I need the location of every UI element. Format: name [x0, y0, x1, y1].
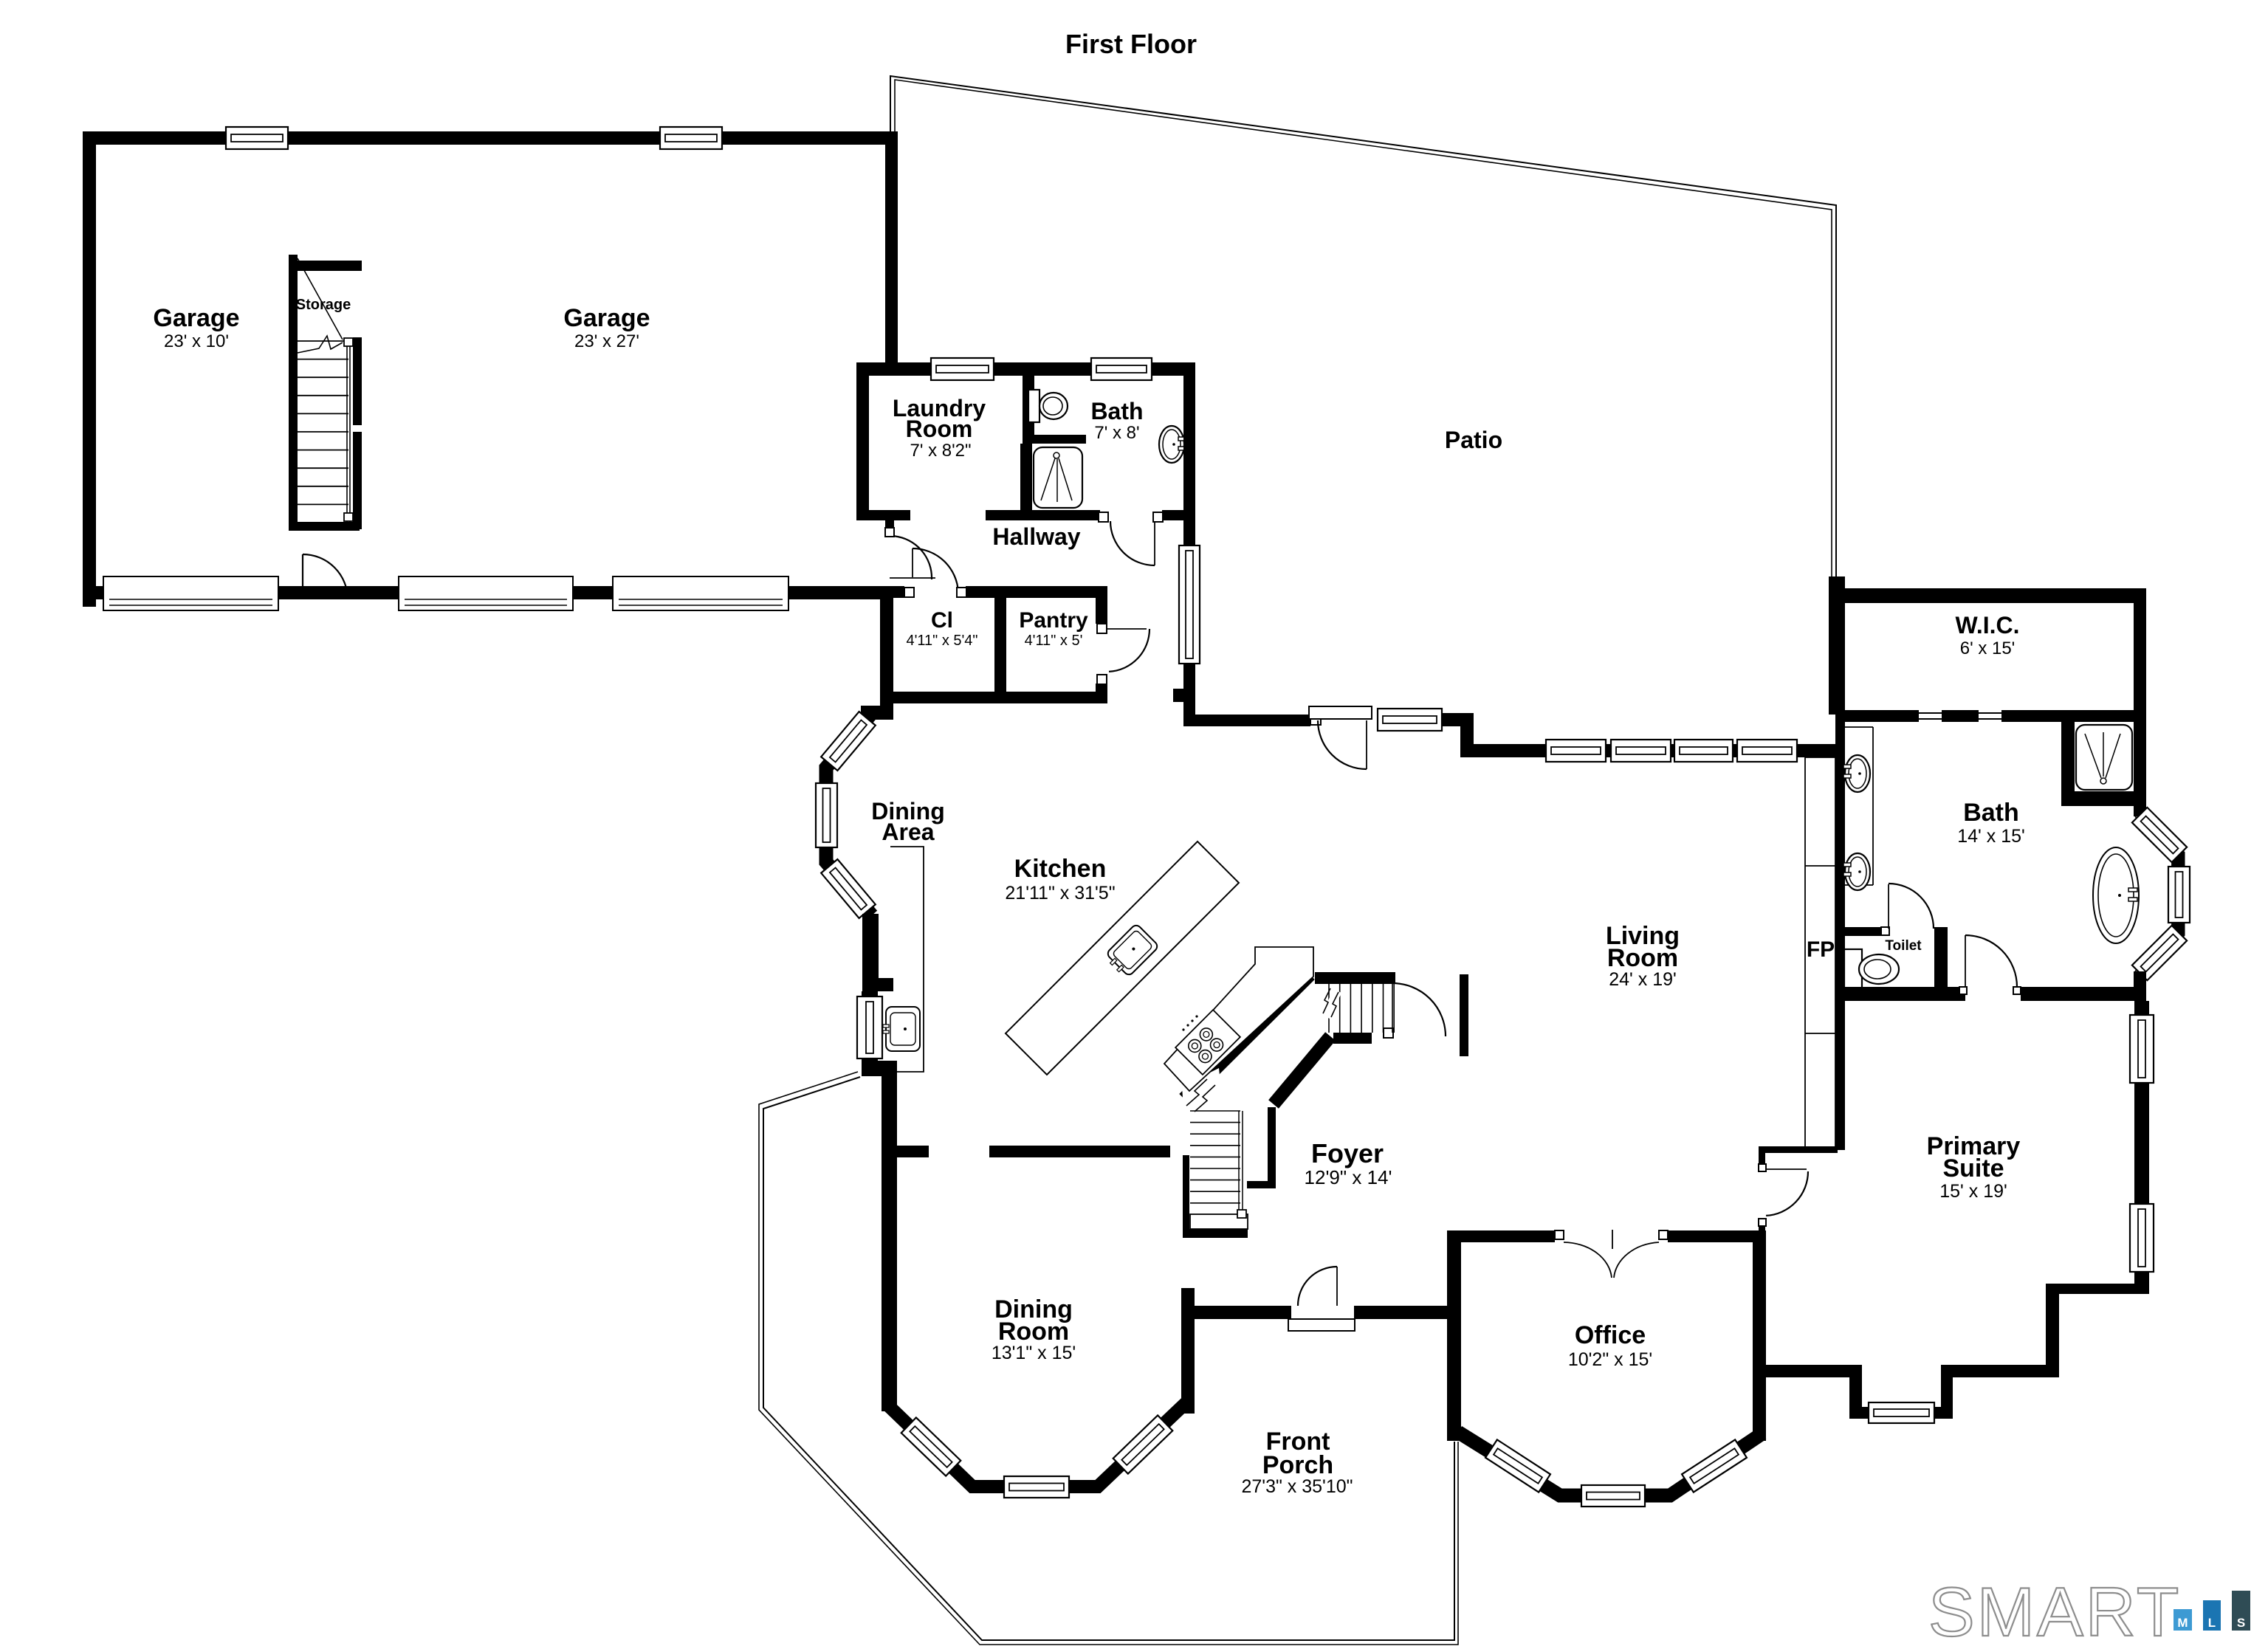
svg-text:M: M	[2177, 1616, 2188, 1630]
svg-text:13'1" x 15': 13'1" x 15'	[992, 1343, 1076, 1363]
svg-text:Office: Office	[1575, 1321, 1646, 1349]
svg-text:First Floor: First Floor	[1065, 29, 1197, 59]
svg-text:7' x 8': 7' x 8'	[1094, 423, 1139, 443]
svg-text:L: L	[2208, 1616, 2216, 1630]
svg-text:W.I.C.: W.I.C.	[1955, 612, 2019, 638]
svg-text:Garage: Garage	[153, 304, 239, 332]
svg-text:23' x 27': 23' x 27'	[574, 331, 639, 351]
svg-text:14' x 15': 14' x 15'	[1957, 826, 2025, 847]
svg-text:Suite: Suite	[1942, 1154, 2004, 1182]
svg-text:15' x 19': 15' x 19'	[1939, 1181, 2007, 1202]
svg-text:12'9" x 14': 12'9" x 14'	[1305, 1166, 1392, 1188]
svg-text:21'11" x 31'5": 21'11" x 31'5"	[1005, 883, 1115, 903]
svg-text:Pantry: Pantry	[1019, 608, 1088, 633]
svg-text:4'11" x 5': 4'11" x 5'	[1025, 633, 1083, 649]
svg-text:Toilet: Toilet	[1885, 938, 1922, 954]
svg-text:Patio: Patio	[1445, 427, 1502, 453]
svg-text:23' x 10': 23' x 10'	[164, 331, 229, 351]
svg-text:Porch: Porch	[1262, 1451, 1333, 1479]
svg-text:Bath: Bath	[1963, 799, 2019, 827]
svg-text:6' x 15': 6' x 15'	[1960, 638, 2016, 658]
svg-text:Cl: Cl	[931, 608, 953, 633]
svg-text:Storage: Storage	[296, 297, 351, 313]
svg-text:4'11" x 5'4": 4'11" x 5'4"	[906, 633, 977, 649]
svg-text:S: S	[2237, 1616, 2245, 1630]
svg-text:Hallway: Hallway	[992, 523, 1080, 550]
svg-text:27'3" x 35'10": 27'3" x 35'10"	[1241, 1476, 1353, 1497]
svg-text:Garage: Garage	[563, 304, 650, 332]
svg-text:Room: Room	[906, 416, 973, 442]
svg-text:7' x 8'2": 7' x 8'2"	[910, 441, 971, 461]
svg-text:SMART: SMART	[1928, 1573, 2181, 1649]
svg-text:Area: Area	[882, 819, 934, 845]
svg-text:FP: FP	[1807, 937, 1835, 962]
svg-text:24' x 19': 24' x 19'	[1609, 969, 1677, 990]
svg-text:Bath: Bath	[1090, 398, 1143, 424]
svg-text:Room: Room	[998, 1318, 1069, 1346]
svg-text:Foyer: Foyer	[1311, 1138, 1384, 1168]
svg-text:10'2" x 15': 10'2" x 15'	[1568, 1349, 1652, 1370]
svg-text:Room: Room	[1607, 944, 1678, 972]
svg-text:Kitchen: Kitchen	[1014, 855, 1107, 883]
